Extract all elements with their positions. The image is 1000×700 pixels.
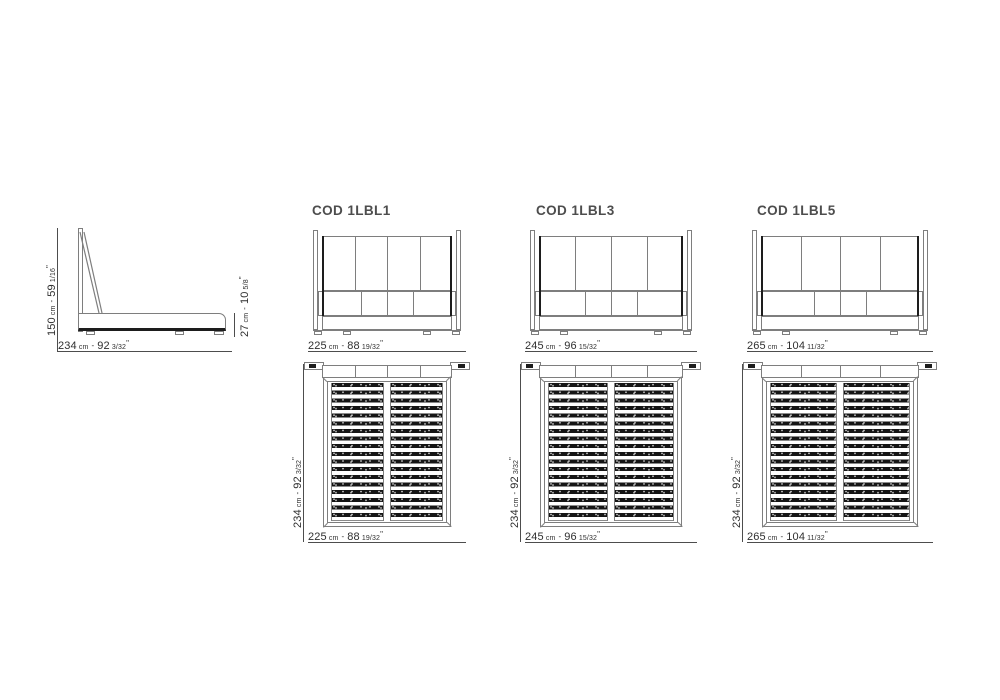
top-3-depth-dim-part-3: 92 — [731, 476, 743, 489]
top-1-depth-dim-part-1: cm — [296, 498, 303, 508]
top-3-headboard-bar-divider — [801, 366, 802, 377]
top-2-width-dim-underline — [525, 542, 697, 543]
top-2-depth-dim-part-5: " — [508, 457, 517, 460]
top-2-width-dim-part-1: cm — [546, 535, 556, 542]
top-3-headboard-bar-divider — [880, 366, 881, 377]
top-2-depth-dim-part-2: - — [510, 492, 519, 495]
top-1-left-post-tab-block — [309, 364, 316, 368]
top-3-left-post-tab-block — [748, 364, 755, 368]
top-2-right-post-tab-block — [689, 364, 696, 368]
top-3-slat-panel-left — [770, 383, 837, 521]
top-3-depth-dim-part-1: cm — [735, 498, 742, 508]
top-3-depth-dim-part-4: 3/32 — [735, 460, 742, 474]
top-3-width-dim-part-2: - — [780, 532, 783, 541]
top-2-left-post-tab-block — [526, 364, 533, 368]
top-3-width-dim-part-1: cm — [768, 535, 778, 542]
top-1-width-dim-underline — [308, 542, 466, 543]
top-3-depth-dim: 234cm-923/32" — [730, 457, 743, 528]
top-2-width-dim-part-5: " — [597, 530, 600, 539]
top-1-slat-panel-left — [331, 383, 384, 521]
top-views-row: 234cm-923/32"225cm-8819/32"234cm-923/32"… — [0, 0, 1000, 700]
top-1-depth-dim-part-3: 92 — [292, 476, 304, 489]
top-1-headboard-bar-divider — [420, 366, 421, 377]
top-2-headboard-bar-divider — [575, 366, 576, 377]
top-1-depth-dim: 234cm-923/32" — [291, 457, 304, 528]
top-2-depth-dim: 234cm-923/32" — [508, 457, 521, 528]
top-2-width-dim-part-4: 15/32 — [579, 535, 597, 542]
top-3-depth-dim-part-2: - — [732, 492, 741, 495]
top-1-width-dim-part-4: 19/32 — [362, 535, 380, 542]
top-3-right-post-tab-block — [925, 364, 932, 368]
top-1-headboard-bar-divider — [387, 366, 388, 377]
top-3-depth-dim-part-0: 234 — [731, 509, 743, 528]
top-3-slat-panel-right — [843, 383, 910, 521]
bed-spec-sheet: 150cm-591/16"27cm-105/8"234cm-923/32" CO… — [0, 0, 1000, 700]
top-1-width-dim-part-1: cm — [329, 535, 339, 542]
top-1-depth-dim-part-4: 3/32 — [296, 460, 303, 474]
top-1-headboard-bar-divider — [355, 366, 356, 377]
top-2-depth-dim-part-0: 234 — [509, 509, 521, 528]
top-3-width-dim-part-5: " — [825, 530, 828, 539]
top-2-depth-dim-part-1: cm — [513, 498, 520, 508]
top-2-slat-panel-right — [614, 383, 674, 521]
top-1-depth-dim-part-2: - — [293, 492, 302, 495]
top-2-headboard-bar-divider — [647, 366, 648, 377]
top-1-slat-panel-right — [390, 383, 443, 521]
top-3-width-dim-part-4: 11/32 — [807, 535, 825, 542]
top-1-width-dim-part-5: " — [380, 530, 383, 539]
top-2-slat-panel-left — [548, 383, 608, 521]
top-2-depth-dim-part-3: 92 — [509, 476, 521, 489]
top-2-headboard-bar-divider — [611, 366, 612, 377]
top-1-depth-dim-part-0: 234 — [292, 509, 304, 528]
top-3-width-dim-underline — [747, 542, 933, 543]
top-3-headboard-bar-divider — [840, 366, 841, 377]
top-3-depth-dim-part-5: " — [730, 457, 739, 460]
top-2-width-dim-part-2: - — [558, 532, 561, 541]
top-1-width-dim-part-2: - — [341, 532, 344, 541]
top-1-right-post-tab-block — [458, 364, 465, 368]
top-1-depth-dim-part-5: " — [291, 457, 300, 460]
top-2-depth-dim-part-4: 3/32 — [513, 460, 520, 474]
